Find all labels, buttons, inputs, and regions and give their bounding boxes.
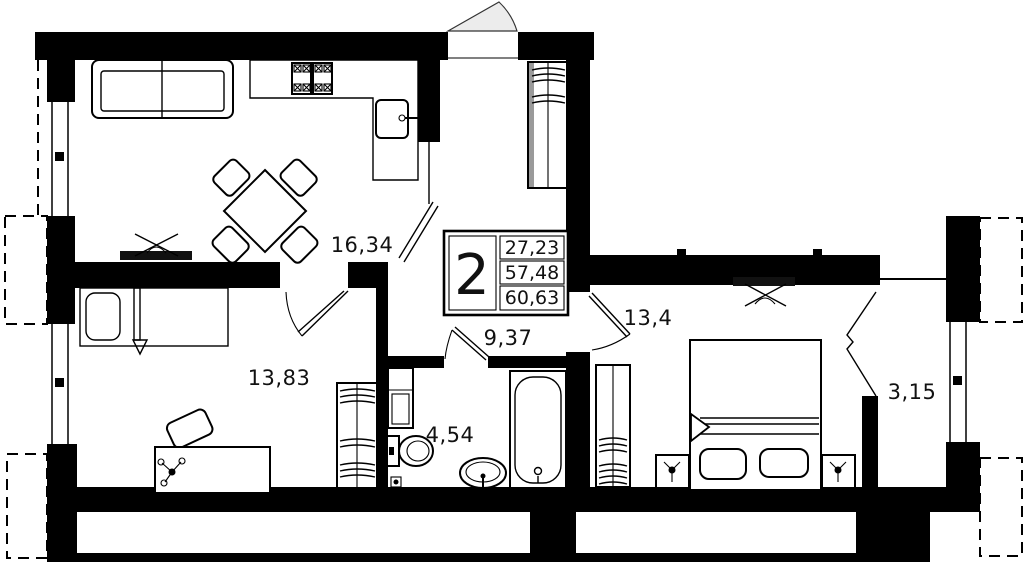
room-label-secondary: 13,83	[248, 366, 311, 390]
wall-top-left	[35, 32, 448, 60]
wall-hall-right-upper	[566, 60, 590, 292]
bed-icon	[690, 340, 821, 490]
floor-plan-canvas: 16,34 13,83	[0, 0, 1024, 563]
door-bathroom	[445, 327, 489, 360]
window-left-lower	[52, 324, 68, 444]
wall-bath-top-right	[488, 356, 568, 368]
desk-icon	[155, 408, 270, 493]
exterior-projection-box-right-upper	[980, 218, 1022, 322]
exterior-projection-box-left-lower	[7, 454, 47, 558]
wardrobe-open-icon	[80, 288, 228, 354]
kitchen-sink-icon	[376, 100, 419, 138]
kitchen-counter-icon	[250, 60, 418, 180]
dining-table-icon	[210, 157, 319, 264]
unit-info-badge: 2 27,23 57,48 60,63	[444, 231, 568, 315]
wall-right-lower-block	[946, 442, 980, 512]
opening-living-hall	[399, 202, 438, 262]
window-lock-icon	[55, 152, 64, 161]
window-left-upper	[52, 102, 68, 216]
bedroom-wardrobe-icon	[596, 365, 630, 487]
window-balcony-right	[950, 322, 966, 442]
table-top	[224, 170, 306, 252]
tv-bedroom-icon	[733, 277, 795, 306]
room-label-hallway: 9,37	[484, 326, 533, 350]
room-secondary: 13,83	[80, 288, 378, 495]
badge-area-total: 60,63	[505, 287, 559, 309]
exterior-projection-box-left-upper	[5, 216, 47, 324]
sofa-icon	[92, 60, 233, 118]
bedroom: 13,4	[596, 277, 855, 490]
wall-corner-piece	[348, 262, 388, 288]
badge-area-usable: 57,48	[505, 262, 559, 284]
wall-tick-2	[813, 249, 822, 256]
window-lock-icon	[953, 376, 962, 385]
bathroom: 4,54	[387, 368, 566, 491]
door-balcony-splay	[847, 292, 876, 396]
exterior-projection-box-right-lower	[980, 458, 1022, 556]
wall-left-middle	[47, 216, 75, 324]
badge-rooms-count: 2	[454, 243, 490, 308]
entrance-door	[448, 2, 518, 58]
wall-kitchen-shaft	[418, 56, 440, 142]
room-label-living-kitchen: 16,34	[331, 233, 394, 257]
hallway: 2 27,23 57,48 60,63 9,37	[444, 62, 568, 350]
wall-bottom-edge	[60, 553, 860, 562]
wardrobe-striped-icon	[337, 383, 378, 495]
entry-wardrobe-icon	[528, 62, 568, 188]
wall-left-upper	[47, 32, 75, 102]
tv-living-icon	[120, 234, 192, 260]
washing-machine-icon	[388, 368, 413, 428]
badge-area-living: 27,23	[505, 237, 559, 259]
desk-chair-icon	[165, 408, 214, 450]
window-lock-icon	[55, 378, 64, 387]
room-label-bedroom: 13,4	[624, 306, 673, 330]
nightstand-right-icon	[822, 455, 855, 488]
door-room-secondary	[286, 291, 348, 336]
wall-balcony-divider	[862, 396, 878, 488]
room-label-balcony: 3,15	[888, 380, 937, 404]
floor-drain-icon	[391, 477, 401, 487]
room-label-bathroom: 4,54	[426, 423, 475, 447]
nightstand-left-icon	[656, 455, 689, 488]
bathtub-icon	[510, 371, 566, 491]
wall-tick-1	[677, 249, 686, 256]
floor-plan: 16,34 13,83	[0, 0, 1024, 563]
wall-right-upper-block	[946, 216, 980, 322]
wall-top-right	[518, 32, 594, 60]
balcony: 3,15	[888, 380, 937, 404]
wall-living-bottom	[75, 262, 280, 288]
wall-hall-right-lower	[566, 352, 590, 488]
washbasin-icon	[460, 458, 506, 488]
living-kitchen-room: 16,34	[92, 60, 419, 265]
stove-icon	[292, 63, 332, 94]
wall-bath-top-left	[388, 356, 444, 368]
wall-pier-right	[856, 512, 930, 562]
